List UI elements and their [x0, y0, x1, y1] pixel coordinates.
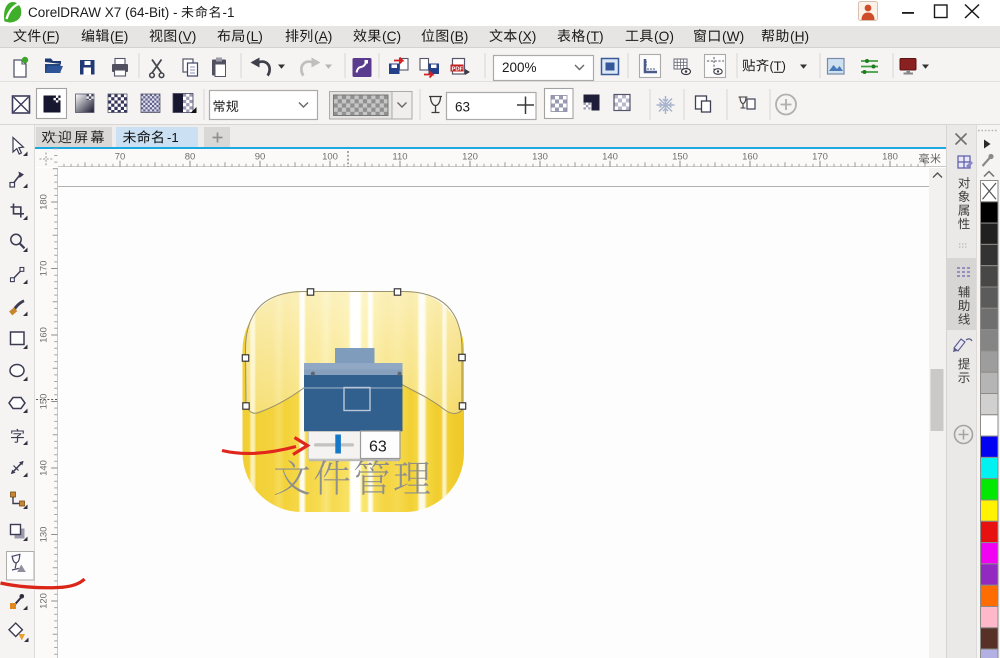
svg-text:130: 130 — [39, 527, 50, 543]
svg-text:CorelDRAW X7 (64-Bit) -: CorelDRAW X7 (64-Bit) - — [28, 5, 178, 20]
svg-text:70: 70 — [115, 152, 126, 163]
svg-text:-1: -1 — [223, 5, 235, 20]
svg-text:150: 150 — [39, 394, 50, 410]
svg-text:63: 63 — [369, 439, 387, 456]
svg-text:PDF: PDF — [452, 66, 464, 72]
svg-text:(L): (L) — [246, 29, 263, 44]
svg-text:110: 110 — [392, 152, 407, 163]
svg-text:140: 140 — [602, 152, 618, 163]
svg-text:(O): (O) — [654, 29, 674, 44]
svg-text:120: 120 — [462, 152, 478, 163]
svg-text:63: 63 — [455, 100, 470, 115]
svg-text:100: 100 — [322, 152, 338, 163]
svg-text:160: 160 — [742, 152, 758, 163]
svg-text:150: 150 — [672, 152, 688, 163]
svg-text:90: 90 — [255, 152, 266, 163]
svg-text:170: 170 — [812, 152, 828, 163]
svg-text:80: 80 — [185, 152, 196, 163]
svg-text:(C): (C) — [382, 29, 401, 44]
svg-text:(W): (W) — [722, 29, 744, 44]
svg-text:140: 140 — [39, 460, 50, 476]
svg-text:170: 170 — [39, 261, 50, 277]
svg-text:180: 180 — [39, 194, 50, 210]
svg-text:200%: 200% — [502, 60, 537, 75]
svg-text:(H): (H) — [790, 29, 809, 44]
svg-text:(B): (B) — [450, 29, 468, 44]
svg-text:(X): (X) — [518, 29, 536, 44]
svg-text:(T): (T) — [586, 29, 604, 44]
svg-text:(E): (E) — [110, 29, 128, 44]
svg-text:(A): (A) — [314, 29, 332, 44]
svg-text:160: 160 — [39, 327, 50, 343]
svg-text:(T): (T) — [770, 58, 786, 73]
svg-text:180: 180 — [882, 152, 898, 163]
svg-text:-1: -1 — [167, 130, 179, 145]
svg-text:(V): (V) — [178, 29, 196, 44]
svg-text:130: 130 — [532, 152, 548, 163]
svg-text:(F): (F) — [42, 29, 60, 44]
svg-text:120: 120 — [39, 593, 50, 609]
